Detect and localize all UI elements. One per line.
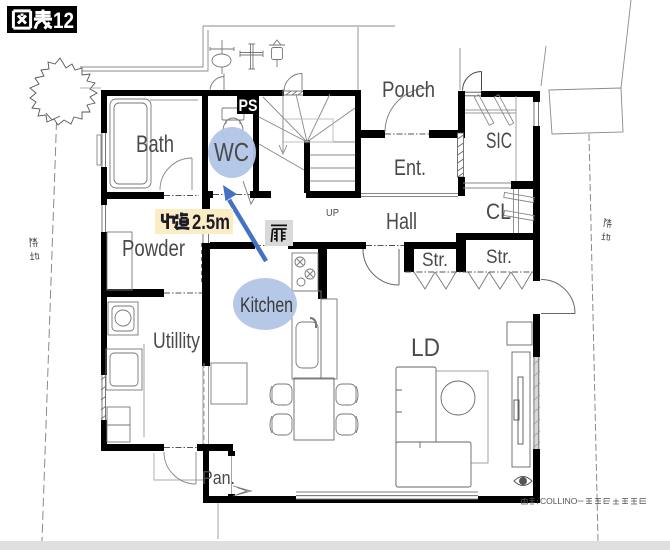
svg-text:Bath: Bath (136, 131, 174, 158)
svg-text:Utillity: Utillity (153, 328, 200, 353)
svg-text:COLLINO: COLLINO (540, 496, 578, 506)
svg-text:PS: PS (239, 96, 258, 115)
svg-text:SIC: SIC (486, 128, 512, 153)
svg-text:LD: LD (411, 334, 440, 362)
svg-text:Hall: Hall (386, 208, 417, 234)
svg-text:Str.: Str. (422, 250, 448, 271)
svg-text:Pan.: Pan. (202, 468, 235, 488)
svg-text:Ent.: Ent. (394, 155, 426, 180)
svg-text:2.5m: 2.5m (192, 211, 230, 234)
svg-text:WC: WC (214, 137, 249, 167)
svg-text:12: 12 (53, 8, 74, 33)
svg-text:Str.: Str. (486, 247, 512, 268)
svg-text:Powder: Powder (122, 235, 185, 261)
svg-text:CL: CL (486, 199, 511, 224)
svg-text:Kitchen: Kitchen (240, 294, 293, 317)
svg-text:Pouch: Pouch (382, 77, 435, 102)
svg-text:UP: UP (326, 208, 339, 219)
